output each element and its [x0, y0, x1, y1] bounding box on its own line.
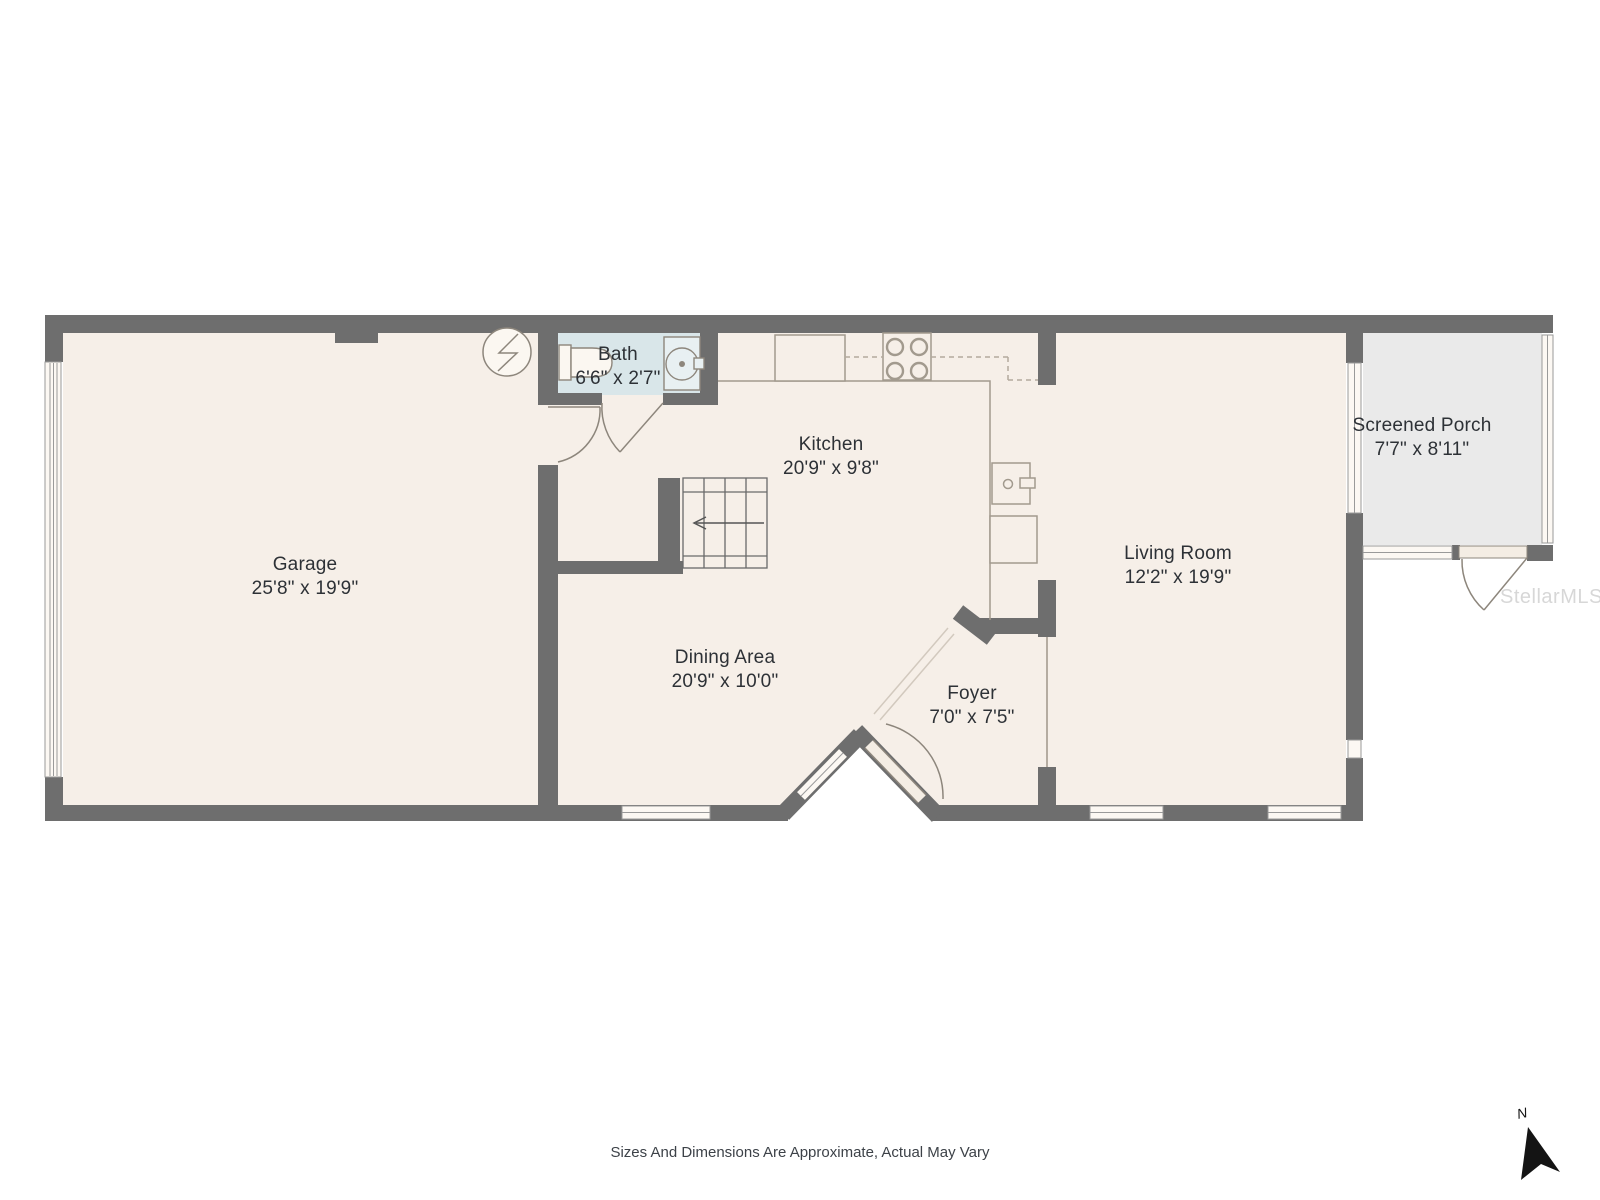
label-living: Living Room 12'2" x 19'9"	[1048, 542, 1308, 590]
room-dims: 12'2" x 19'9"	[1048, 566, 1308, 590]
room-dims: 25'8" x 19'9"	[175, 577, 435, 601]
compass-north-label: N	[1515, 1104, 1528, 1122]
wall-porch-corner	[1527, 545, 1553, 561]
porch-door	[1459, 546, 1527, 558]
porch-door-swing	[1462, 559, 1484, 610]
disclaimer-text: Sizes And Dimensions Are Approximate, Ac…	[0, 1144, 1600, 1161]
label-foyer: Foyer 7'0" x 7'5"	[842, 682, 1102, 730]
room-dims: 20'9" x 9'8"	[701, 457, 961, 481]
room-dims: 7'0" x 7'5"	[842, 706, 1102, 730]
floorplan-page: Garage 25'8" x 19'9" Bath 6'6" x 2'7" Ki…	[0, 0, 1600, 1200]
wall-bath-bottom-left	[558, 393, 602, 405]
wall-left-upper	[45, 315, 63, 362]
room-name: Garage	[175, 553, 435, 577]
room-name: Bath	[488, 343, 748, 367]
wall-bath-bottom-right	[663, 393, 700, 405]
room-name: Dining Area	[595, 646, 855, 670]
room-name: Screened Porch	[1292, 414, 1552, 438]
wall-top-notch	[335, 333, 378, 343]
stairs	[683, 478, 767, 568]
room-name: Kitchen	[701, 433, 961, 457]
wall-stair-side	[658, 478, 680, 574]
room-dims: 7'7" x 8'11"	[1292, 438, 1552, 462]
compass: N	[1455, 1085, 1585, 1195]
room-dims: 6'6" x 2'7"	[488, 367, 748, 391]
room-dims: 20'9" x 10'0"	[595, 670, 855, 694]
room-name: Living Room	[1048, 542, 1308, 566]
watermark: StellarMLS	[1500, 586, 1600, 609]
living-right-small-window	[1348, 740, 1361, 758]
label-garage: Garage 25'8" x 19'9"	[175, 553, 435, 601]
label-kitchen: Kitchen 20'9" x 9'8"	[701, 433, 961, 481]
wall-garage-right-lower	[538, 465, 558, 805]
dishwasher	[990, 516, 1037, 563]
room-name: Foyer	[842, 682, 1102, 706]
wall-kitchen-living-upper	[1038, 333, 1056, 385]
wall-living-right-mid	[1346, 513, 1363, 740]
wall-living-right-lower	[1346, 758, 1363, 821]
label-porch: Screened Porch 7'7" x 8'11"	[1292, 414, 1552, 462]
wall-foyer-living-lower	[1038, 767, 1056, 805]
label-bath: Bath 6'6" x 2'7"	[488, 343, 748, 391]
kitchen-sink-faucet	[1020, 478, 1035, 488]
label-dining: Dining Area 20'9" x 10'0"	[595, 646, 855, 694]
wall-left-lower	[45, 777, 63, 821]
refrigerator	[775, 335, 845, 381]
wall-top	[45, 315, 1553, 333]
wall-living-porch-upper	[1346, 333, 1363, 363]
